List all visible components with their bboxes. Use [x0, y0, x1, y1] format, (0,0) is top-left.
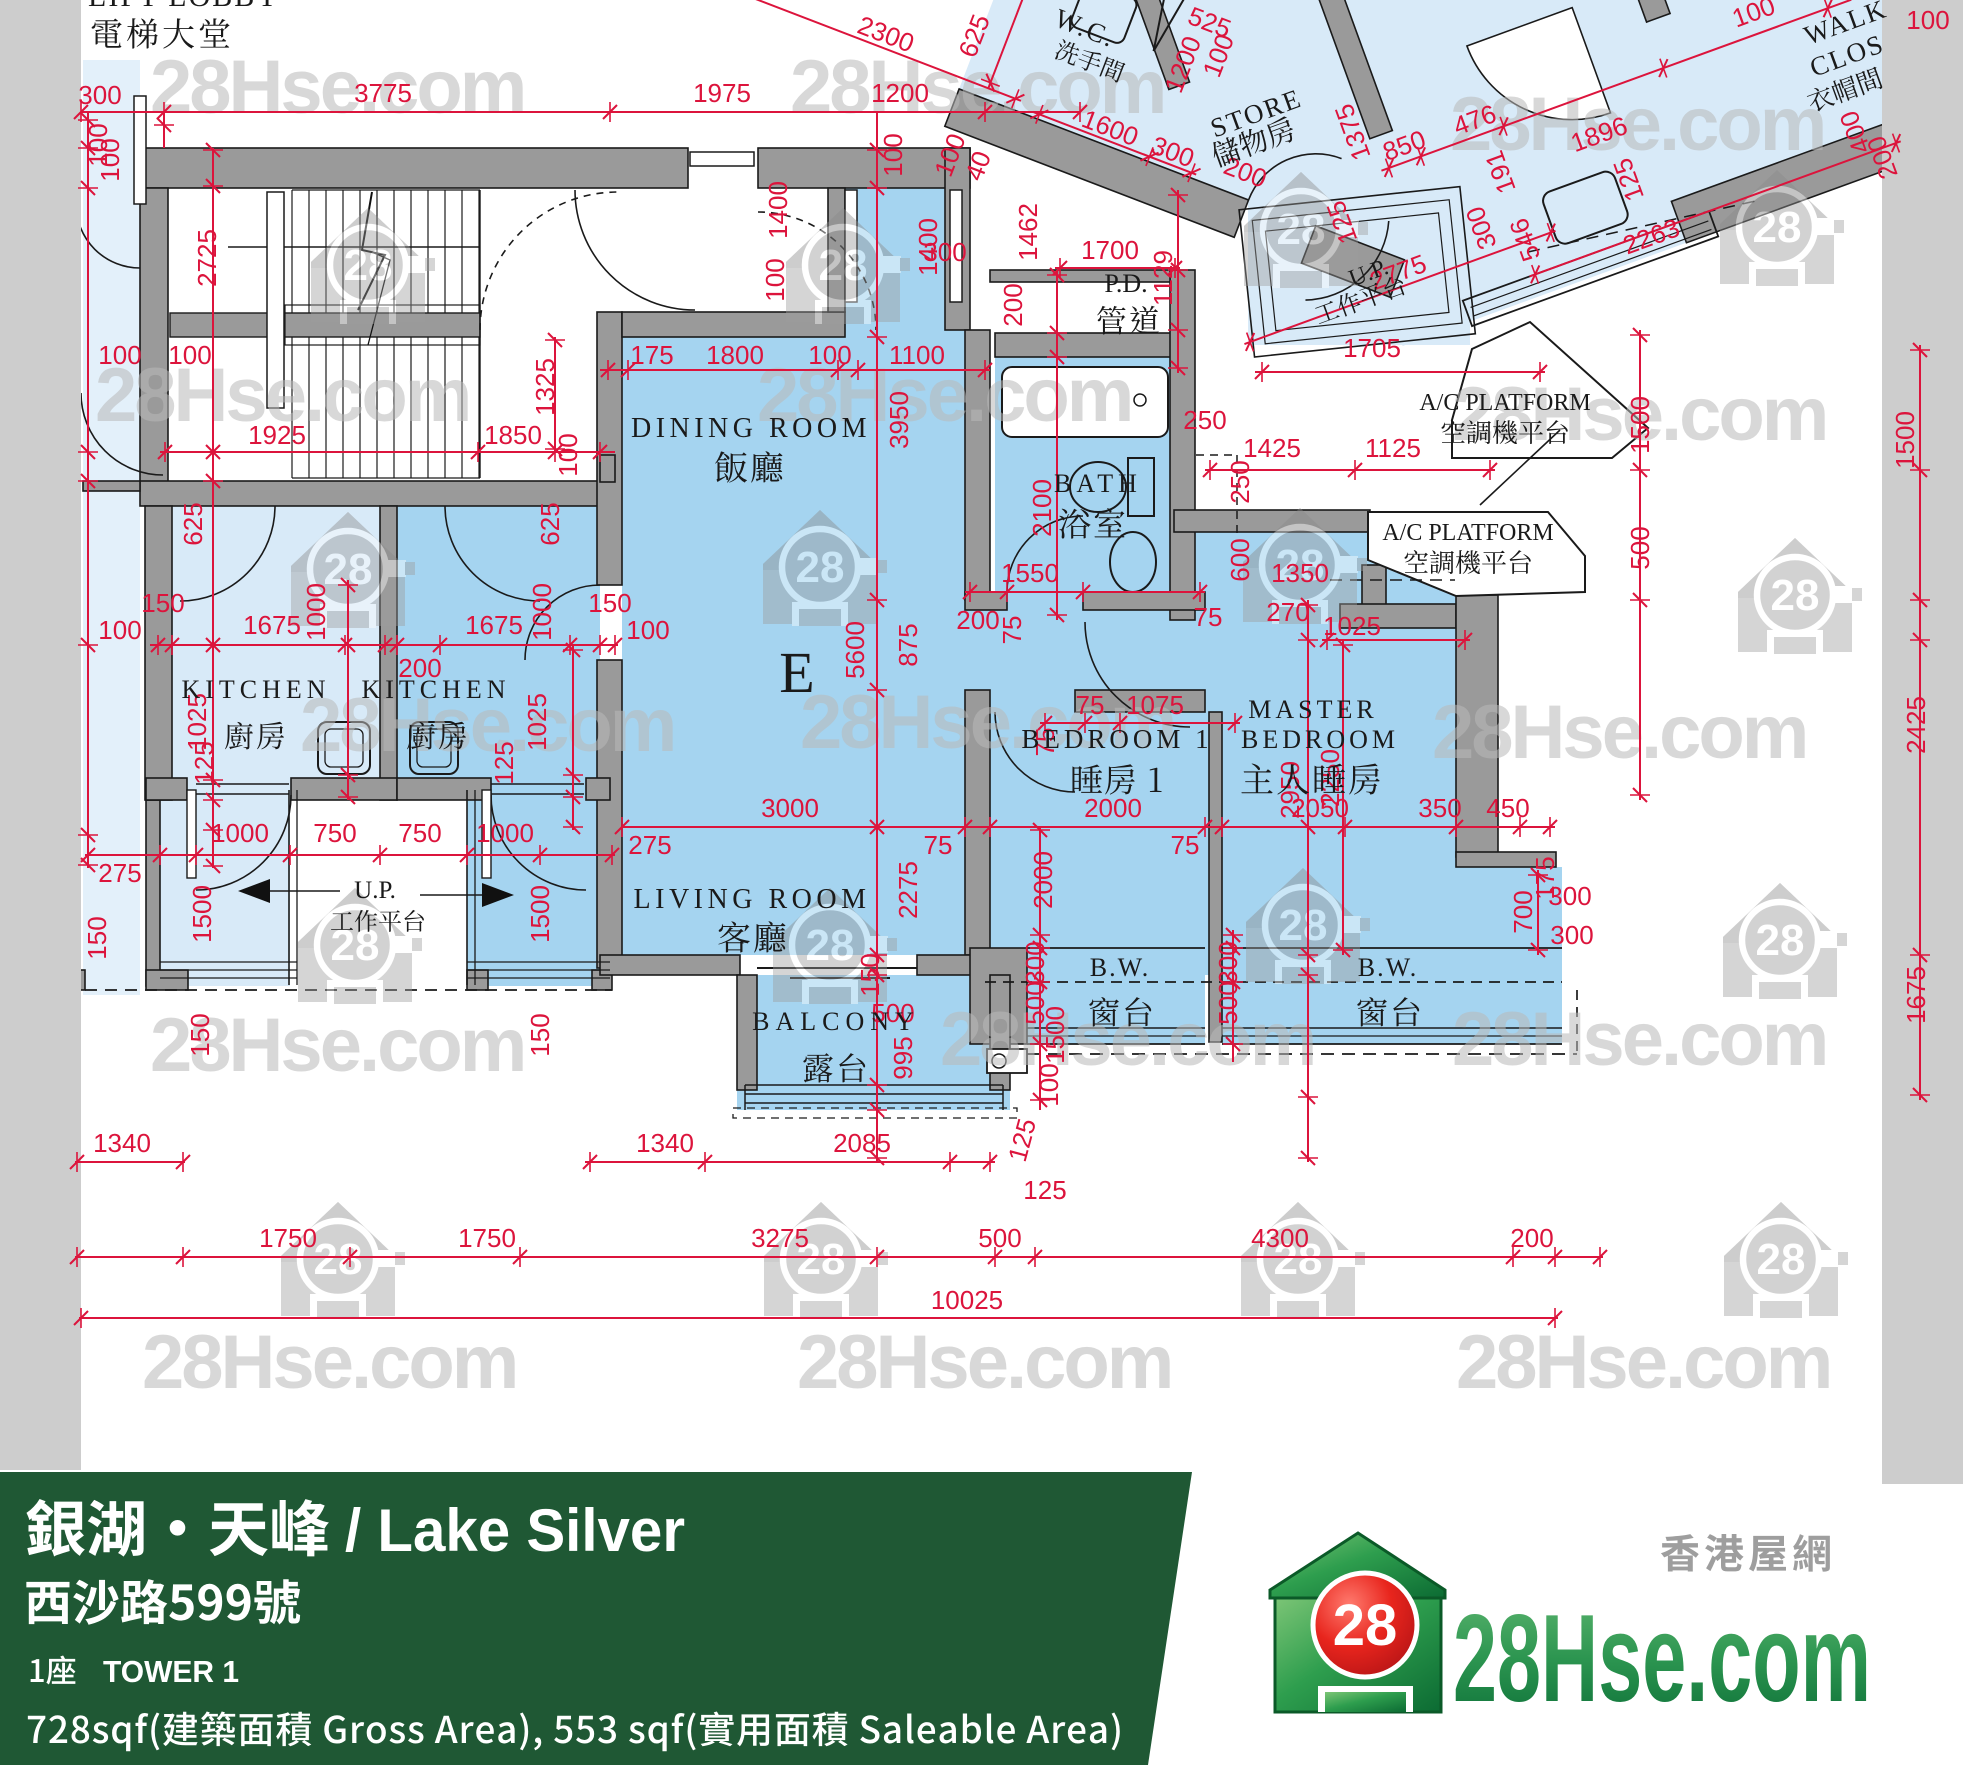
svg-text:B.W.: B.W. [1358, 953, 1419, 982]
svg-text:1340: 1340 [636, 1128, 694, 1158]
svg-text:1550: 1550 [1001, 558, 1059, 588]
svg-text:150: 150 [82, 916, 112, 959]
svg-text:1705: 1705 [1343, 333, 1401, 363]
svg-text:1025: 1025 [1323, 611, 1381, 641]
svg-text:1925: 1925 [248, 420, 306, 450]
svg-text:125: 125 [189, 741, 219, 784]
svg-text:100: 100 [1906, 5, 1949, 35]
svg-text:75: 75 [924, 830, 953, 860]
svg-text:MASTER: MASTER [1248, 695, 1377, 724]
svg-text:300: 300 [1020, 941, 1050, 984]
svg-text:100: 100 [626, 615, 669, 645]
svg-text:BEDROOM 1: BEDROOM 1 [1021, 724, 1212, 754]
svg-text:1975: 1975 [693, 78, 751, 108]
svg-text:2100: 2100 [1027, 479, 1057, 537]
svg-text:KITCHEN: KITCHEN [361, 675, 510, 704]
svg-text:2085: 2085 [833, 1128, 891, 1158]
svg-text:1100: 1100 [889, 340, 945, 370]
svg-text:E: E [779, 640, 814, 705]
svg-text:125: 125 [489, 741, 519, 784]
svg-text:3000: 3000 [761, 793, 819, 823]
svg-text:1400: 1400 [763, 181, 793, 239]
svg-text:B.W.: B.W. [1090, 953, 1151, 982]
svg-text:1000: 1000 [476, 818, 534, 848]
svg-text:500: 500 [1213, 981, 1243, 1024]
svg-text:150: 150 [525, 1013, 555, 1056]
svg-text:28: 28 [331, 921, 380, 970]
svg-text:1025: 1025 [522, 693, 552, 751]
svg-text:300: 300 [923, 237, 966, 267]
svg-text:5600: 5600 [840, 621, 870, 679]
svg-text:1340: 1340 [93, 1128, 151, 1158]
svg-text:1500: 1500 [1625, 396, 1655, 454]
svg-text:TOWER 1: TOWER 1 [103, 1654, 239, 1689]
svg-text:1675: 1675 [243, 610, 301, 640]
svg-text:28: 28 [1279, 901, 1328, 950]
svg-text:28: 28 [1756, 916, 1805, 965]
svg-text:175: 175 [1530, 856, 1560, 899]
svg-text:1500: 1500 [1040, 1006, 1070, 1064]
svg-text:3950: 3950 [884, 391, 914, 449]
svg-text:LIFT LOBBY: LIFT LOBBY [88, 0, 280, 13]
svg-text:1125: 1125 [1365, 433, 1421, 463]
svg-text:28Hse.com: 28Hse.com [150, 45, 524, 130]
svg-text:28Hse.com: 28Hse.com [797, 1320, 1171, 1405]
svg-text:150: 150 [141, 588, 184, 618]
svg-text:LIVING ROOM: LIVING ROOM [634, 884, 871, 915]
svg-text:1800: 1800 [706, 340, 764, 370]
svg-text:270: 270 [1266, 597, 1309, 627]
svg-text:750: 750 [313, 818, 356, 848]
svg-text:4300: 4300 [1251, 1223, 1309, 1253]
svg-text:300: 300 [1550, 920, 1593, 950]
svg-text:28Hse.com: 28Hse.com [1453, 1590, 1871, 1728]
svg-text:995: 995 [888, 1036, 918, 1079]
svg-text:28: 28 [1757, 1235, 1806, 1284]
svg-text:1129: 1129 [1148, 250, 1178, 306]
svg-text:150: 150 [185, 1013, 215, 1056]
svg-text:2000: 2000 [1028, 851, 1058, 909]
svg-text:100: 100 [98, 340, 141, 370]
svg-text:1750: 1750 [458, 1223, 516, 1253]
svg-text:1675: 1675 [1901, 966, 1931, 1024]
svg-text:100: 100 [168, 340, 211, 370]
svg-text:100: 100 [808, 340, 851, 370]
svg-text:1500: 1500 [187, 885, 217, 943]
svg-text:1700: 1700 [1081, 235, 1139, 265]
svg-text:150: 150 [588, 588, 631, 618]
svg-text:1675: 1675 [465, 610, 523, 640]
svg-text:450: 450 [1486, 793, 1529, 823]
svg-text:750: 750 [398, 818, 441, 848]
svg-text:1500: 1500 [1890, 411, 1920, 469]
svg-text:75: 75 [1076, 690, 1105, 720]
svg-text:300: 300 [78, 80, 121, 110]
svg-text:150: 150 [855, 953, 885, 996]
svg-text:1850: 1850 [484, 420, 542, 450]
svg-text:1750: 1750 [259, 1223, 317, 1253]
svg-text:28Hse.com: 28Hse.com [1432, 690, 1806, 775]
svg-text:1000: 1000 [211, 818, 269, 848]
svg-text:28: 28 [1753, 203, 1802, 252]
svg-text:200: 200 [1510, 1223, 1553, 1253]
svg-text:625: 625 [535, 502, 565, 545]
svg-text:250: 250 [1183, 405, 1226, 435]
svg-text:350: 350 [1418, 793, 1461, 823]
svg-text:275: 275 [628, 830, 671, 860]
svg-text:28: 28 [819, 241, 868, 290]
svg-text:28: 28 [806, 921, 855, 970]
svg-text:200: 200 [998, 283, 1028, 326]
svg-text:100: 100 [760, 258, 790, 301]
svg-text:75: 75 [1194, 602, 1223, 632]
svg-text:1425: 1425 [1243, 433, 1301, 463]
svg-text:28: 28 [796, 543, 845, 592]
svg-text:1000: 1000 [301, 583, 331, 641]
svg-text:28Hse.com: 28Hse.com [1456, 1320, 1830, 1405]
svg-text:2725: 2725 [192, 229, 222, 287]
svg-text:2000: 2000 [1084, 793, 1142, 823]
svg-text:2275: 2275 [893, 861, 923, 919]
svg-text:1200: 1200 [871, 78, 929, 108]
svg-text:BATH: BATH [1054, 469, 1142, 498]
svg-text:875: 875 [893, 623, 923, 666]
svg-text:28Hse.com: 28Hse.com [1452, 997, 1826, 1082]
svg-text:125: 125 [1023, 1175, 1066, 1205]
svg-text:75: 75 [1171, 830, 1200, 860]
svg-text:10025: 10025 [931, 1285, 1003, 1315]
svg-text:100: 100 [553, 433, 583, 476]
svg-text:75: 75 [997, 616, 1027, 645]
svg-text:28: 28 [344, 241, 393, 290]
svg-text:A/C PLATFORM: A/C PLATFORM [1419, 390, 1590, 416]
svg-text:28Hse.com: 28Hse.com [142, 1320, 516, 1405]
svg-text:275: 275 [98, 858, 141, 888]
svg-text:1325: 1325 [530, 358, 560, 416]
svg-text:28: 28 [1771, 571, 1820, 620]
svg-text:1075: 1075 [1126, 690, 1184, 720]
svg-text:1500: 1500 [525, 885, 555, 943]
svg-text:500: 500 [1625, 526, 1655, 569]
svg-text:100: 100 [95, 138, 125, 181]
svg-text:175: 175 [630, 340, 673, 370]
svg-text:KITCHEN: KITCHEN [181, 675, 330, 704]
svg-text:BALCONY: BALCONY [752, 1007, 920, 1036]
svg-text:3275: 3275 [751, 1223, 809, 1253]
svg-text:U.P.: U.P. [354, 877, 396, 904]
svg-text:3775: 3775 [354, 78, 412, 108]
svg-text:1462: 1462 [1013, 203, 1043, 261]
svg-text:P.D.: P.D. [1104, 269, 1147, 298]
svg-text:250: 250 [1225, 460, 1255, 503]
svg-text:625: 625 [178, 502, 208, 545]
svg-text:DINING ROOM: DINING ROOM [631, 413, 871, 444]
svg-text:28: 28 [1277, 205, 1326, 254]
svg-text:100: 100 [878, 133, 908, 176]
svg-text:500: 500 [978, 1223, 1021, 1253]
svg-text:100: 100 [98, 615, 141, 645]
svg-text:A/C PLATFORM: A/C PLATFORM [1382, 520, 1553, 546]
svg-text:1350: 1350 [1271, 558, 1329, 588]
svg-text:100: 100 [1034, 1063, 1064, 1106]
svg-text:200: 200 [956, 605, 999, 635]
svg-text:2425: 2425 [1901, 696, 1931, 754]
svg-text:300: 300 [1213, 941, 1243, 984]
svg-text:/ Lake Silver: / Lake Silver [345, 1497, 685, 1564]
svg-text:BEDROOM: BEDROOM [1241, 725, 1399, 754]
svg-text:28: 28 [1333, 1593, 1398, 1658]
svg-text:1000: 1000 [527, 583, 557, 641]
svg-text:600: 600 [1225, 538, 1255, 581]
svg-text:28: 28 [314, 1235, 363, 1284]
